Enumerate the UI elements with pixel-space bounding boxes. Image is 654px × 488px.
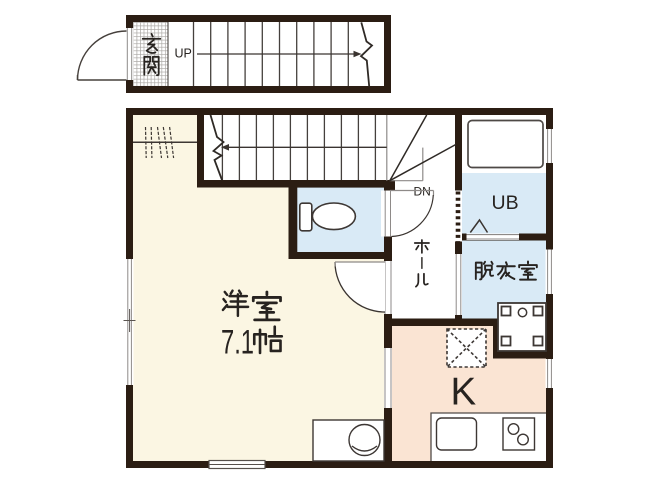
svg-text:K: K (451, 371, 477, 414)
svg-text:DN: DN (414, 185, 431, 199)
svg-text:UB: UB (492, 192, 519, 214)
svg-text:7.1: 7.1 (221, 323, 254, 361)
svg-text:UP: UP (175, 47, 192, 61)
